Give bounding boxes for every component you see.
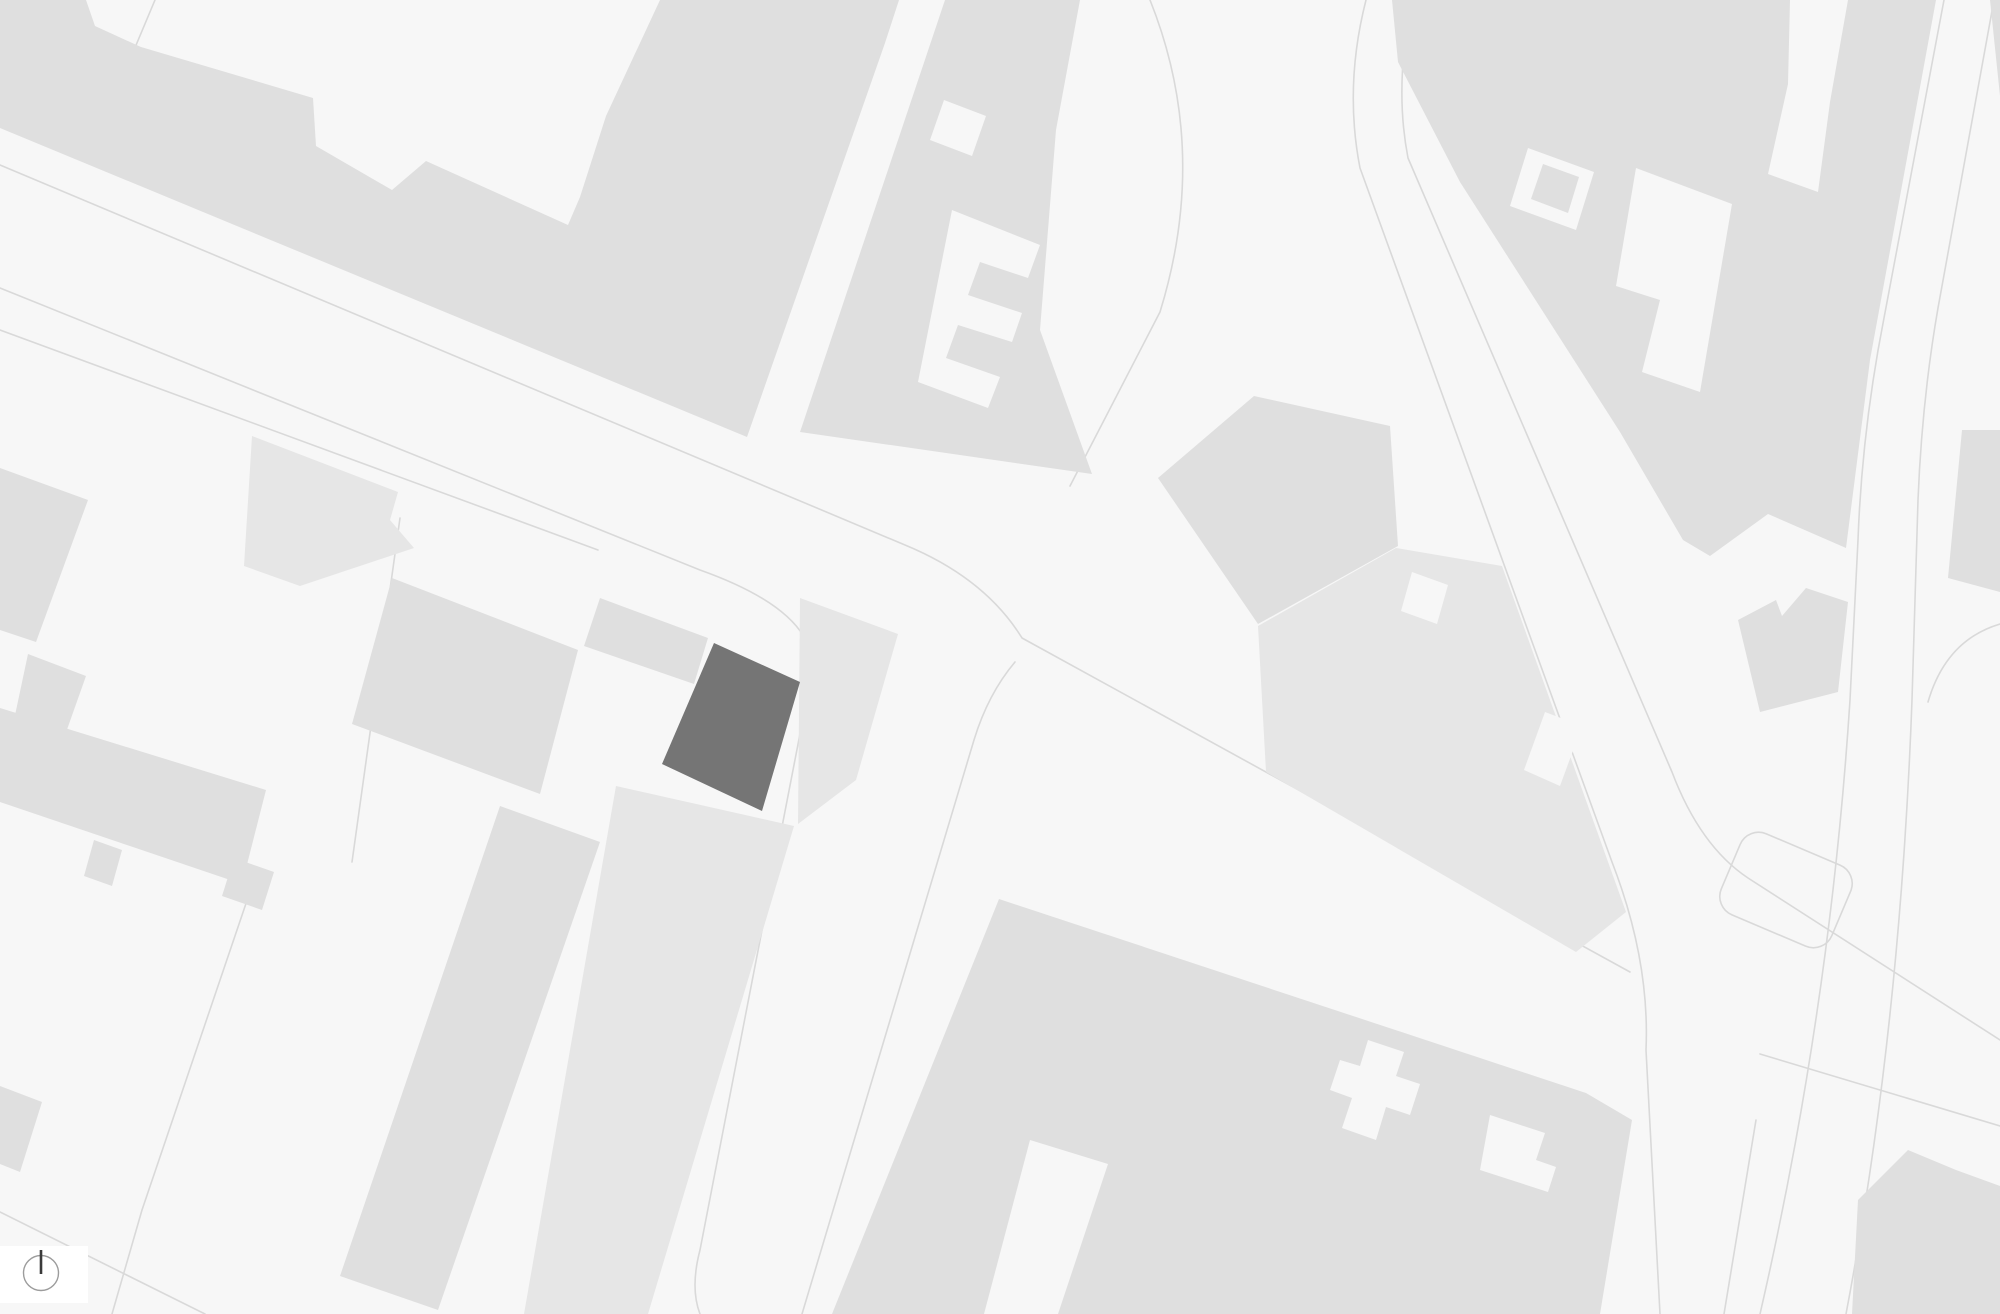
site-plan-map bbox=[0, 0, 2000, 1314]
map-viewport bbox=[0, 0, 2000, 1314]
north-indicator-badge bbox=[0, 1246, 88, 1303]
